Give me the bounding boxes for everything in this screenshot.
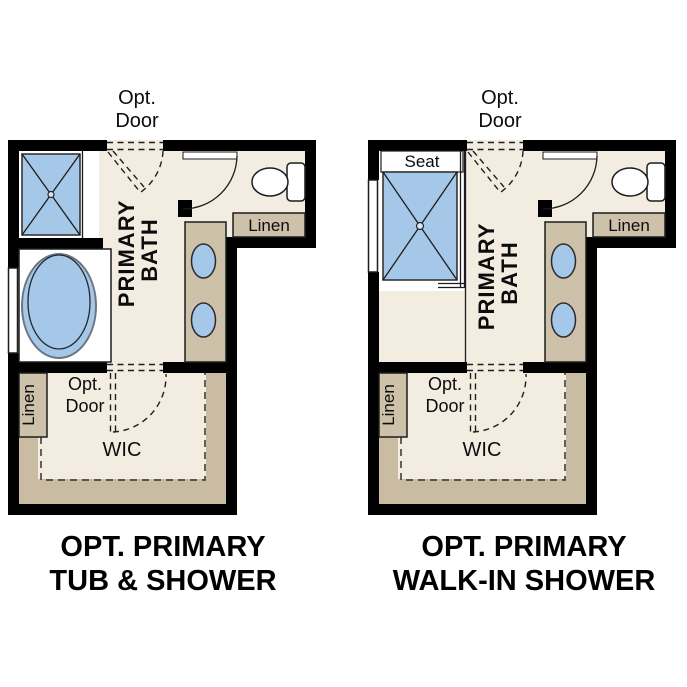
wic-door-label: Opt.	[68, 374, 102, 394]
wic-door-opening	[467, 362, 523, 373]
bathtub	[19, 249, 111, 362]
floorplan-sheet: Opt. Door	[0, 0, 687, 687]
wic-floor	[398, 373, 566, 479]
sink	[552, 303, 576, 337]
vanity	[545, 222, 586, 362]
shower-drain-icon	[48, 192, 54, 198]
wic-label: WIC	[103, 439, 142, 461]
plan-tub-and-shower: Linen Linen PRIMARY BATH Opt. Door WIC	[8, 140, 316, 515]
vanity	[185, 222, 226, 362]
linen-label: Linen	[608, 216, 650, 235]
wic-linen-label: Linen	[379, 384, 398, 426]
wic-floor	[38, 373, 206, 479]
plan-title-left: OPT. PRIMARY TUB & SHOWER	[49, 530, 276, 598]
shower-drain-icon	[417, 223, 424, 230]
wic-door-label: Opt.	[428, 374, 462, 394]
sink	[192, 244, 216, 278]
wic-door-label: Door	[65, 396, 104, 416]
plan-title-right: OPT. PRIMARY WALK-IN SHOWER	[393, 530, 656, 598]
wic-linen-label: Linen	[19, 384, 38, 426]
linen-label: Linen	[248, 216, 290, 235]
wic-door-opening	[107, 362, 163, 373]
sink	[552, 244, 576, 278]
sink	[192, 303, 216, 337]
opt-door-label-top-left: Opt. Door	[115, 87, 158, 133]
window	[9, 268, 18, 353]
wic-label: WIC	[463, 439, 502, 461]
seat-label: Seat	[405, 152, 440, 171]
opt-door-label-top-right: Opt. Door	[478, 87, 521, 133]
window	[369, 180, 378, 272]
wic-door-label: Door	[425, 396, 464, 416]
shower	[19, 151, 99, 238]
plan-walk-in-shower: Seat Linen	[368, 140, 676, 515]
